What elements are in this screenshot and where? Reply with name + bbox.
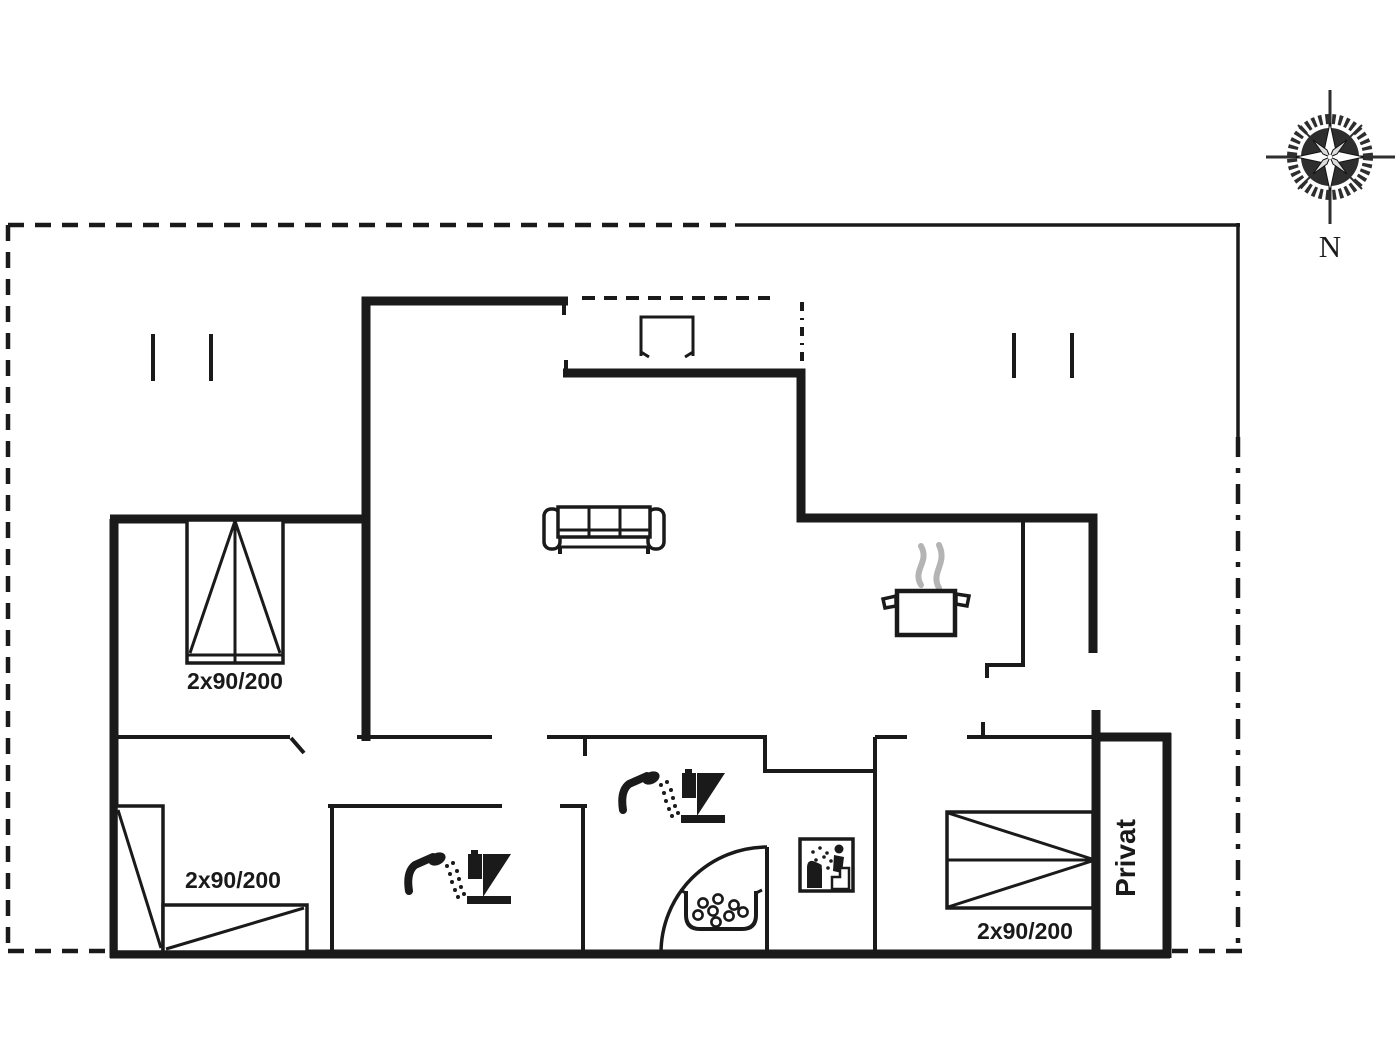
bed-right <box>947 812 1093 908</box>
compass-center <box>1328 155 1332 159</box>
cooking-pot-icon <box>883 545 969 635</box>
pot-handle <box>956 594 969 606</box>
steam-wisp <box>936 545 941 588</box>
compass-rose-icon <box>1266 90 1395 224</box>
appliance-detail-left <box>807 861 822 888</box>
bed-size-label: 2x90/200 <box>977 918 1073 944</box>
pot-body <box>897 591 955 635</box>
floor-plan-drawing: 2x90/200 2x90/200 2x90/200 Privat N <box>0 0 1400 1050</box>
floor-plan-page: 2x90/200 2x90/200 2x90/200 Privat N <box>0 0 1400 1050</box>
kitchen-nook-wall <box>985 520 1023 665</box>
private-room-label: Privat <box>1110 819 1141 897</box>
appliance-figure-head <box>835 845 844 854</box>
terrace-table-outline <box>641 317 693 356</box>
sofa-back <box>558 507 650 537</box>
bed-size-label: 2x90/200 <box>185 867 281 893</box>
utility-appliance-icon <box>800 839 853 891</box>
door-leaf-tick <box>291 738 304 753</box>
pot-handle <box>883 596 896 608</box>
bed-size-label: 2x90/200 <box>187 668 283 694</box>
terrace-table-icon <box>641 317 693 357</box>
sofa-icon <box>544 507 664 554</box>
stone-bowl-icon <box>680 890 762 929</box>
bed-top-left <box>187 520 283 663</box>
hall-niche-wall <box>547 737 873 771</box>
terrace-table-feet <box>641 352 693 357</box>
steam-wisp <box>918 546 923 585</box>
north-label: N <box>1319 229 1341 264</box>
bathroom-shower-toilet-icon <box>408 850 511 904</box>
living-room-west-wall <box>366 301 568 741</box>
hall-shower-toilet-icon <box>622 769 725 823</box>
